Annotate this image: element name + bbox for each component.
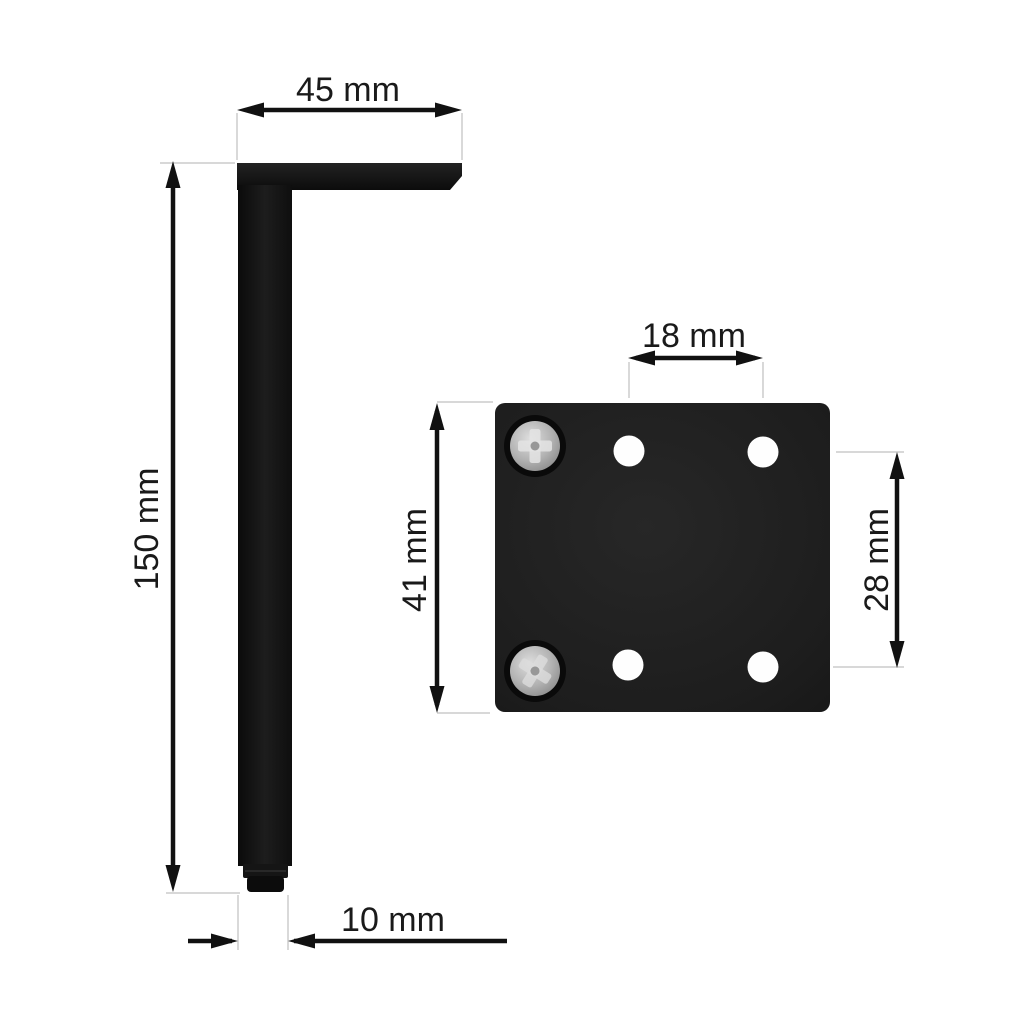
mounting-plate-assembly	[495, 403, 830, 712]
arrowhead-down-icon	[890, 641, 905, 668]
arrowhead-left-icon	[237, 103, 264, 118]
dim-41mm-label: 41 mm	[398, 508, 432, 612]
leg-column	[238, 185, 292, 866]
arrowhead-left-icon	[288, 934, 315, 949]
diagram-page: 45 mm 150 mm 10 mm 18 mm 41 mm 28 mm	[0, 0, 1024, 1024]
hole-bottom-right	[748, 652, 779, 683]
dim-45mm-label: 45 mm	[296, 73, 400, 107]
dim-28mm-label: 28 mm	[860, 508, 894, 612]
hole-bottom-center	[613, 650, 644, 681]
leg-foot	[247, 876, 284, 892]
screw-bottom-left	[504, 640, 566, 702]
arrowhead-right-icon	[435, 103, 462, 118]
arrowhead-right-icon	[211, 934, 238, 949]
arrowhead-up-icon	[890, 452, 905, 479]
dim-10mm-label: 10 mm	[341, 903, 445, 937]
arrowhead-up-icon	[430, 403, 445, 430]
hole-top-center	[614, 436, 645, 467]
arrowhead-down-icon	[166, 865, 181, 892]
dim-150mm-label: 150 mm	[130, 468, 164, 591]
screw-top-left	[504, 415, 566, 477]
arrowhead-up-icon	[166, 161, 181, 188]
arrowhead-down-icon	[430, 686, 445, 713]
dim-18mm-label: 18 mm	[642, 319, 746, 353]
dim-150mm-arrow	[166, 161, 181, 892]
hole-top-right	[748, 437, 779, 468]
